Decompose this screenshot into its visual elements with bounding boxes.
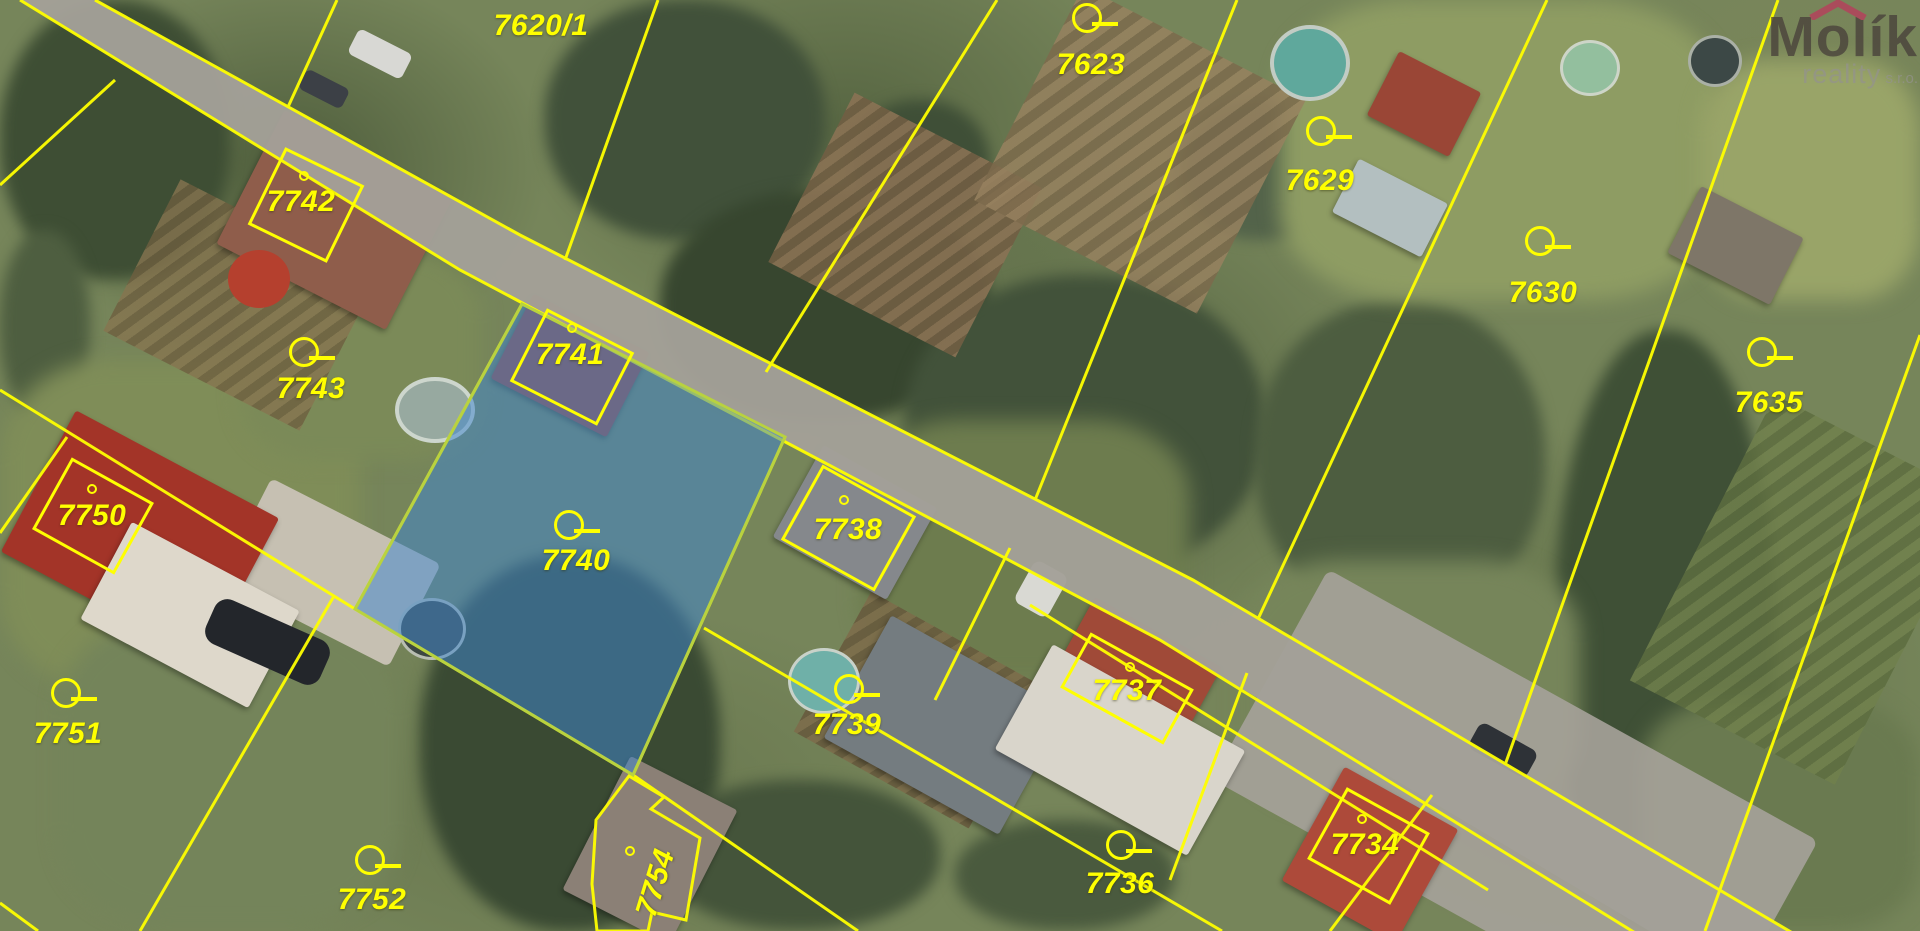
parcel-point-marker-7635: [1747, 337, 1777, 367]
parcel-label-7620/1: 7620/1: [494, 9, 589, 43]
parcel-label-7739: 7739: [813, 708, 882, 742]
watermark-logo: Molík reality s.r.o.: [1728, 0, 1918, 90]
parcel-point-marker-7752: [355, 845, 385, 875]
parcel-label-7751: 7751: [34, 717, 103, 751]
parcel-point-marker-7743: [289, 337, 319, 367]
parcel-label-7736: 7736: [1086, 867, 1155, 901]
logo-roof-icon: [1808, 0, 1870, 20]
parcel-point-marker-7630: [1525, 226, 1555, 256]
logo-tagline-row: reality s.r.o.: [1728, 59, 1918, 90]
building-box-7737: [1060, 632, 1194, 744]
building-box-7750: [32, 457, 154, 574]
parcel-label-7754: 7754: [630, 845, 683, 921]
building-box-7741: [510, 308, 635, 426]
parcel-point-marker-7736: [1106, 830, 1136, 860]
logo-tagline: reality: [1802, 59, 1881, 89]
building-dot-marker-7754: [625, 846, 635, 856]
parcel-label-7752: 7752: [338, 883, 407, 917]
parcel-point-marker-7739: [834, 674, 864, 704]
parcel-label-7629: 7629: [1286, 164, 1355, 198]
building-box-7734: [1307, 787, 1430, 905]
parcel-label-7630: 7630: [1509, 276, 1578, 310]
building-box-7742: [248, 147, 365, 263]
building-box-7738: [780, 464, 915, 591]
parcel-label-7635: 7635: [1735, 386, 1804, 420]
parcel-label-7743: 7743: [277, 372, 346, 406]
parcel-labels-layer: 7620/17623762976307635774277437741775077…: [0, 0, 1920, 931]
parcel-label-7740: 7740: [542, 544, 611, 578]
map-canvas[interactable]: 7620/17623762976307635774277437741775077…: [0, 0, 1920, 931]
parcel-point-marker-7740: [554, 510, 584, 540]
parcel-point-marker-7623: [1072, 3, 1102, 33]
parcel-point-marker-7751: [51, 678, 81, 708]
logo-suffix: s.r.o.: [1881, 70, 1918, 87]
parcel-label-7623: 7623: [1057, 48, 1126, 82]
parcel-point-marker-7629: [1306, 116, 1336, 146]
